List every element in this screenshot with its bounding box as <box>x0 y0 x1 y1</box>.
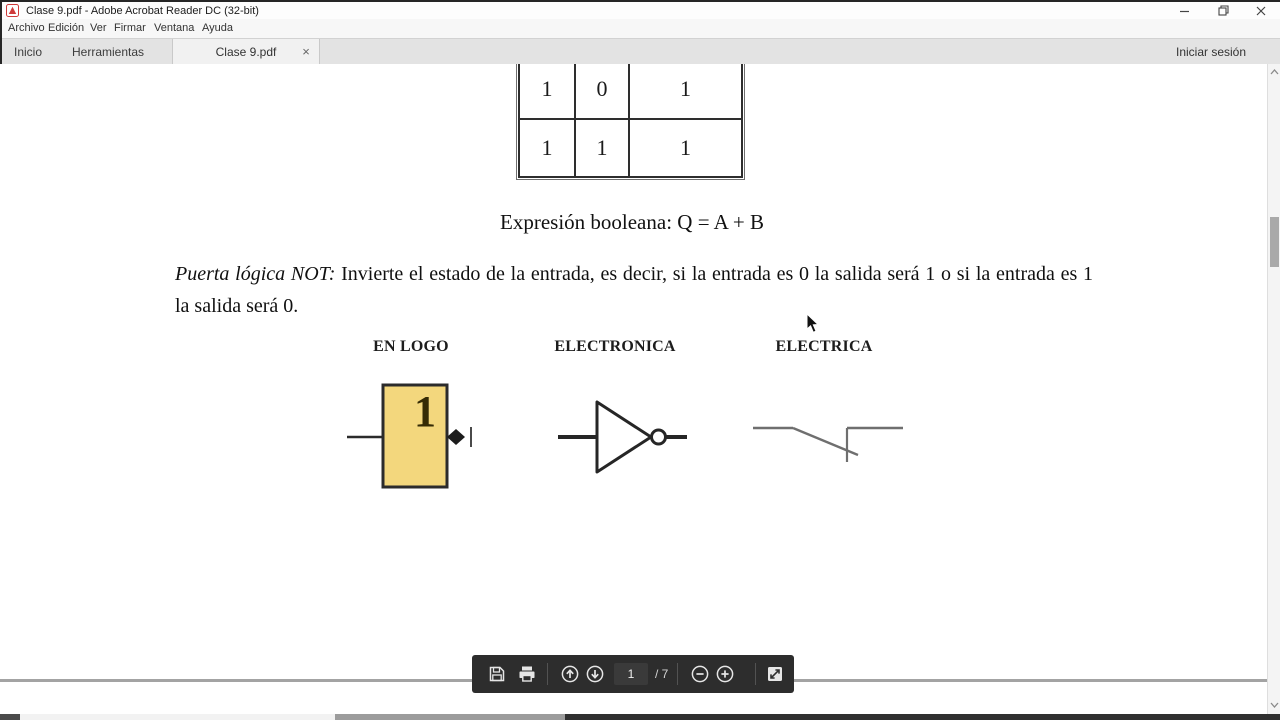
not-gate-paragraph: Puerta lógica NOT: Invierte el estado de… <box>175 259 1093 322</box>
column-header-electronica: ELECTRONICA <box>554 338 675 356</box>
acrobat-app-icon <box>6 4 19 17</box>
close-icon <box>1256 6 1266 16</box>
menu-ayuda[interactable]: Ayuda <box>202 19 233 38</box>
table-cell: 1 <box>575 119 629 177</box>
fullscreen-icon[interactable] <box>766 665 784 683</box>
toolbar-divider <box>755 663 756 685</box>
truth-table: 1 0 1 1 1 1 <box>516 64 745 180</box>
bottom-strip-segment <box>0 714 20 720</box>
table-cell: 1 <box>629 64 742 119</box>
title-bar: Clase 9.pdf - Adobe Acrobat Reader DC (3… <box>0 2 1280 19</box>
vertical-scrollbar[interactable] <box>1267 64 1280 714</box>
page-up-icon[interactable] <box>561 665 579 683</box>
tab-inicio[interactable]: Inicio <box>0 39 56 65</box>
floating-page-toolbar: 1 / 7 <box>472 655 794 693</box>
page-number-input[interactable]: 1 <box>614 663 648 685</box>
window-controls <box>1166 2 1280 19</box>
table-row: 1 0 1 <box>519 64 742 119</box>
table-cell: 0 <box>575 64 629 119</box>
page-down-icon[interactable] <box>586 665 604 683</box>
electronic-not-gate-diagram <box>550 390 695 485</box>
logo-not-block-diagram: 1 <box>340 379 485 494</box>
bottom-strip-segment <box>335 714 565 720</box>
minimize-icon <box>1180 6 1190 16</box>
bottom-strip-segment <box>20 714 335 720</box>
scrollbar-up-icon[interactable] <box>1270 69 1279 75</box>
tab-document[interactable]: Clase 9.pdf × <box>172 39 320 65</box>
save-icon[interactable] <box>488 665 506 683</box>
menu-edicion[interactable]: Edición <box>48 19 84 38</box>
column-header-en-logo: EN LOGO <box>373 338 449 356</box>
electric-switch-diagram <box>745 415 910 470</box>
zoom-in-icon[interactable] <box>716 665 734 683</box>
toolbar-divider <box>547 663 548 685</box>
sign-in-link[interactable]: Iniciar sesión <box>1176 39 1246 65</box>
toolbar-divider <box>677 663 678 685</box>
not-gate-lead: Puerta lógica NOT: <box>175 263 335 285</box>
menu-ventana[interactable]: Ventana <box>154 19 194 38</box>
mouse-cursor <box>806 313 820 334</box>
tab-bar: Inicio Herramientas Clase 9.pdf × ? Inic… <box>0 38 1280 64</box>
menu-bar: Archivo Edición Ver Firmar Ventana Ayuda <box>0 19 1280 38</box>
restore-icon <box>1218 5 1229 16</box>
restore-button[interactable] <box>1204 2 1242 19</box>
screen-left-edge <box>0 0 2 64</box>
tab-close-icon[interactable]: × <box>299 39 313 65</box>
menu-firmar[interactable]: Firmar <box>114 19 146 38</box>
acrobat-window: Clase 9.pdf - Adobe Acrobat Reader DC (3… <box>0 0 1280 720</box>
close-button[interactable] <box>1242 2 1280 19</box>
zoom-out-icon[interactable] <box>691 665 709 683</box>
logo-block-label: 1 <box>414 387 436 436</box>
minimize-button[interactable] <box>1166 2 1204 19</box>
menu-ver[interactable]: Ver <box>90 19 107 38</box>
pdf-page: 1 0 1 1 1 1 Expresión booleana: Q = A + … <box>0 64 1280 679</box>
table-cell: 1 <box>629 119 742 177</box>
column-header-electrica: ELECTRICA <box>776 338 873 356</box>
window-title: Clase 9.pdf - Adobe Acrobat Reader DC (3… <box>26 5 259 17</box>
print-icon[interactable] <box>518 665 536 683</box>
table-cell: 1 <box>519 119 575 177</box>
tab-herramientas[interactable]: Herramientas <box>66 39 150 65</box>
bottom-strip-segment <box>565 714 1280 720</box>
scrollbar-down-icon[interactable] <box>1270 702 1279 708</box>
table-row: 1 1 1 <box>519 119 742 177</box>
table-cell: 1 <box>519 64 575 119</box>
menu-archivo[interactable]: Archivo <box>8 19 45 38</box>
boolean-expression: Expresión booleana: Q = A + B <box>0 210 1264 235</box>
page-total-label: / 7 <box>655 667 668 681</box>
document-tab-label: Clase 9.pdf <box>216 45 277 59</box>
scrollbar-thumb[interactable] <box>1270 217 1279 267</box>
